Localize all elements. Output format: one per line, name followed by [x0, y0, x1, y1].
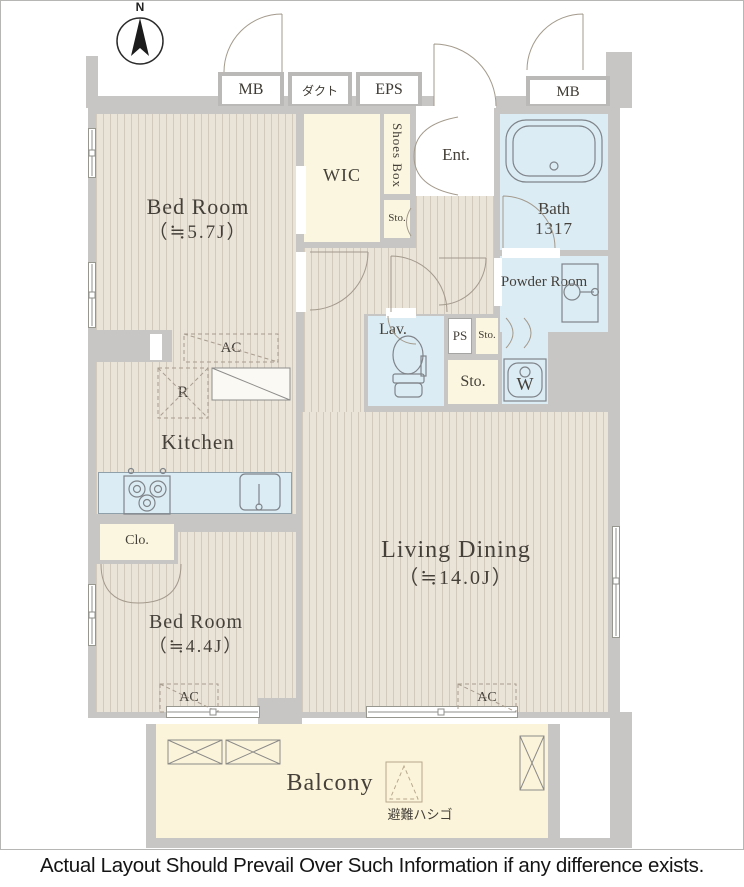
duct-label: ダクト [302, 82, 338, 99]
balcony-wall-right [548, 724, 560, 838]
window-living-side [612, 526, 620, 638]
wall-stub-topleft [86, 56, 98, 108]
window-bedroom-second [88, 584, 96, 646]
wic-label: WIC [304, 164, 380, 188]
pipe-space-label: PS [447, 326, 473, 346]
meter-box-right-label: MB [556, 84, 579, 101]
bedroom-main-size: （≒5.7J） [96, 222, 300, 244]
duct-box: ダクト [288, 72, 352, 108]
floor-plan: N MB ダクト EPS MB Bed Room （≒ [0, 0, 744, 887]
eps-label: EPS [375, 81, 403, 99]
hallway-vert-floor [304, 314, 364, 412]
bath-door-opening [502, 248, 560, 258]
living-dining-size: （≒14.0J） [304, 566, 608, 590]
window-bedroom-main-2 [88, 262, 96, 328]
compass-north-label: N [114, 0, 166, 15]
bedroom-main-label: Bed Room [96, 194, 300, 220]
kitchen-wall-slot [150, 334, 162, 360]
balcony-label: Balcony [240, 768, 420, 798]
balcony-wall-bottom [146, 838, 632, 848]
bedroom-second-label: Bed Room [96, 610, 296, 634]
washing-machine-label: W [502, 374, 548, 396]
entrance-label: Ent. [420, 144, 492, 166]
bath-size-label: 1317 [500, 219, 608, 239]
hallway-floor [304, 248, 494, 314]
balcony-wall-left [146, 724, 156, 848]
eps-box: EPS [356, 72, 422, 108]
evacuation-ladder-label: 避難ハシゴ [370, 806, 470, 824]
lavatory-door-opening [386, 308, 416, 318]
shoes-box-label: Shoes Box [383, 118, 411, 192]
entrance-hall-floor [416, 196, 494, 254]
meter-box-left-label: MB [239, 81, 264, 99]
ac-bedroom-second-label: AC [160, 686, 218, 710]
lavatory-label: Lav. [370, 320, 416, 340]
disclaimer-text: Actual Layout Should Prevail Over Such I… [0, 852, 744, 880]
powder-room-label: Powder Room [500, 260, 588, 304]
kitchen-counter [98, 472, 292, 514]
storage-hall-large-label: Sto. [448, 372, 498, 392]
window-bedroom-main-1 [88, 128, 96, 178]
living-dining-label: Living Dining [304, 536, 608, 564]
bedroom-second-size: （≒4.4J） [96, 636, 296, 658]
bottom-wall-step [258, 698, 302, 726]
storage-hall-small-label: Sto. [474, 327, 500, 343]
meter-box-right: MB [526, 76, 610, 108]
bedroom-main-door-opening [296, 252, 306, 312]
kitchen-label: Kitchen [96, 430, 300, 456]
outer-wall-right-column [610, 712, 632, 838]
ac-kitchen-label: AC [184, 336, 278, 360]
ac-living-label: AC [458, 686, 516, 710]
meter-box-left: MB [218, 72, 284, 108]
storage-entrance-label: Sto. [382, 210, 412, 226]
closet-label: Clo. [96, 530, 178, 552]
entrance-top-opening [434, 94, 496, 108]
bath-label: Bath [500, 198, 608, 220]
refrigerator-label: R [158, 382, 208, 404]
